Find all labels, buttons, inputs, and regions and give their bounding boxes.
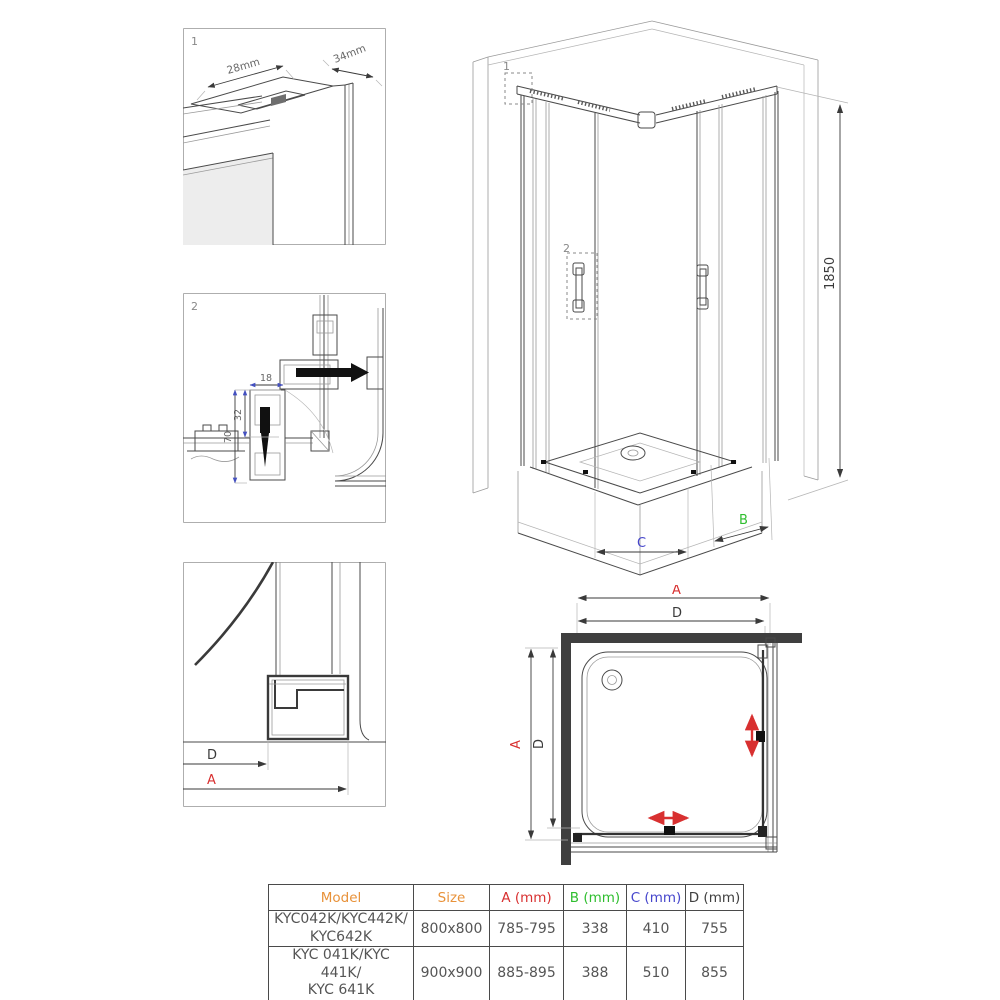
spec-table-wrap: Model Size A (mm) B (mm) C (mm) D (mm) K… — [268, 884, 744, 1000]
handle-left — [573, 263, 584, 312]
enclosure-frame — [517, 86, 778, 489]
detail-view-1: 1 28mm — [183, 28, 386, 245]
cell-d-2: 855 — [686, 947, 744, 1000]
iso-dimensions: 1850 C B — [595, 87, 848, 558]
cell-model-1: KYC042K/KYC442K/ KYC642K — [269, 911, 414, 947]
cell-a-1: 785-795 — [490, 911, 564, 947]
detail-3-dimensions: D A — [183, 748, 346, 789]
screw-horizontal — [296, 363, 369, 382]
callout-2-label: 2 — [563, 242, 570, 255]
col-header-model: Model — [269, 885, 414, 911]
col-header-d-mm: D (mm) — [686, 885, 744, 911]
spec-table-header-row: Model Size A (mm) B (mm) C (mm) D (mm) — [269, 885, 744, 911]
gasket-strip — [271, 94, 286, 106]
detail-view-3: D A — [183, 562, 386, 807]
spec-table: Model Size A (mm) B (mm) C (mm) D (mm) K… — [268, 884, 744, 1000]
shower-tray — [518, 433, 762, 575]
plan-handle-bottom — [664, 826, 675, 835]
door-curve — [195, 562, 273, 665]
cell-d-1: 755 — [686, 911, 744, 947]
isometric-view: 1 2 1850 — [460, 10, 860, 610]
detail-view-2: 2 — [183, 293, 386, 523]
plan-enclosure — [571, 638, 777, 852]
detail-1-number: 1 — [191, 35, 198, 48]
detail-2-number: 2 — [191, 300, 198, 313]
wall-left — [561, 633, 571, 865]
dim-34mm: 34mm — [332, 42, 368, 65]
technical-drawing-sheet: 1 28mm — [0, 0, 1000, 1000]
cell-size-2: 900x900 — [414, 947, 490, 1000]
cell-b-2: 388 — [564, 947, 627, 1000]
callout-1-label: 1 — [503, 60, 510, 73]
col-header-size: Size — [414, 885, 490, 911]
drain — [602, 670, 622, 690]
handle-right — [697, 265, 708, 309]
plan-dim-a-left: A — [509, 740, 524, 749]
dim-18: 18 — [260, 373, 272, 384]
dim-b-label: B — [739, 513, 748, 528]
plan-view: A D — [500, 585, 880, 875]
cell-size-1: 800x800 — [414, 911, 490, 947]
dim-height-1850: 1850 — [823, 257, 838, 290]
plan-handle-right — [756, 731, 765, 742]
dim-c-label: C — [637, 536, 646, 551]
col-header-c-mm: C (mm) — [627, 885, 686, 911]
plan-dim-a-top: A — [672, 585, 681, 598]
dim-70: 70 — [223, 431, 234, 443]
cell-model-2: KYC 041K/KYC 441K/ KYC 641K — [269, 947, 414, 1000]
door-handles — [573, 263, 708, 312]
detail-1-drawing — [183, 77, 353, 245]
cell-a-2: 885-895 — [490, 947, 564, 1000]
cell-b-1: 338 — [564, 911, 627, 947]
col-header-a-mm: A (mm) — [490, 885, 564, 911]
cell-c-2: 510 — [627, 947, 686, 1000]
detail-2-drawing — [183, 295, 386, 486]
dim-d-label: D — [207, 748, 217, 763]
spec-row-900: KYC 041K/KYC 441K/ KYC 641K 900x900 885-… — [269, 947, 744, 1000]
corner-block — [638, 112, 655, 128]
cell-c-1: 410 — [627, 911, 686, 947]
plan-dim-d-top: D — [672, 606, 682, 621]
dim-a-label: A — [207, 773, 216, 788]
plan-dim-d-left: D — [532, 739, 547, 749]
callouts: 1 2 — [503, 60, 597, 319]
col-header-b-mm: B (mm) — [564, 885, 627, 911]
spec-row-800: KYC042K/KYC442K/ KYC642K 800x800 785-795… — [269, 911, 744, 947]
